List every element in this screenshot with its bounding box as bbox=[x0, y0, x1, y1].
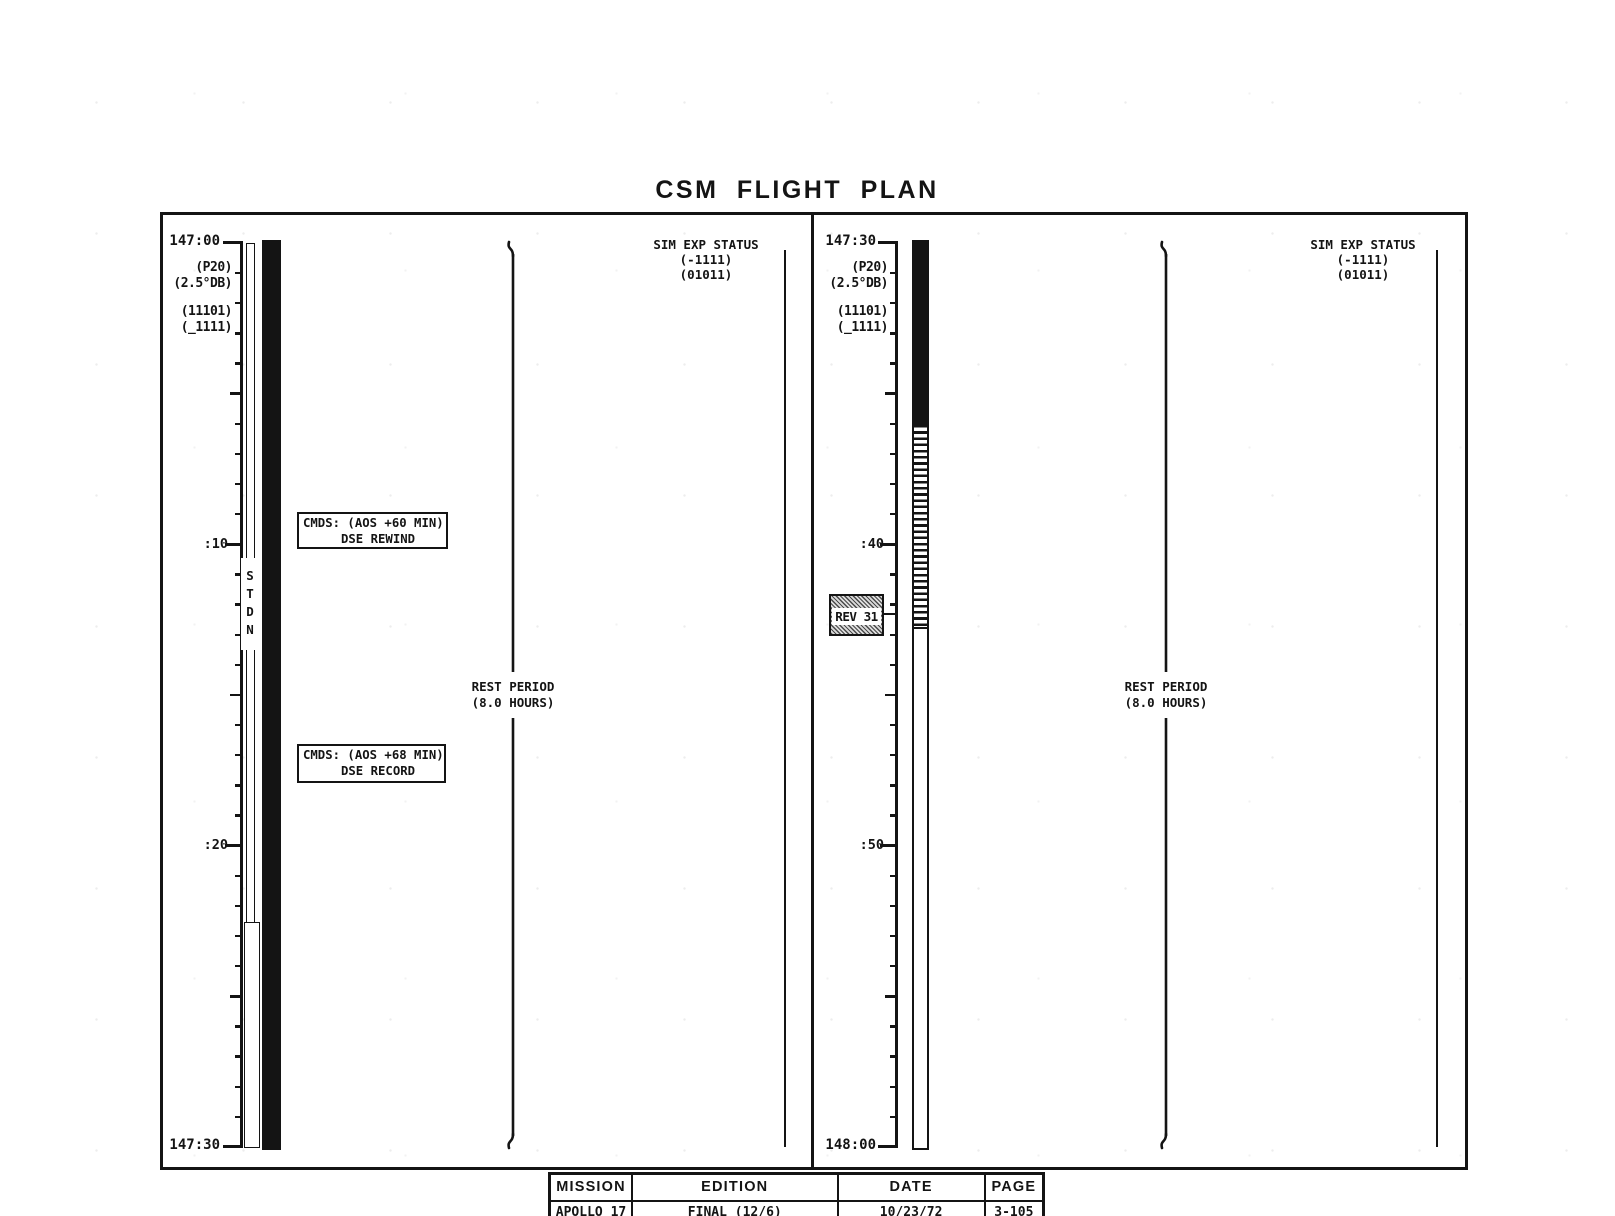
config-label-p20-right: (P20) bbox=[788, 260, 888, 275]
minute-tick bbox=[235, 302, 242, 304]
tick-label-50: :50 bbox=[834, 837, 884, 853]
rest-period-line2-right: (8.0 HOURS) bbox=[1086, 695, 1246, 711]
sim-exp-line2-left: (-1111) bbox=[626, 252, 786, 267]
minute-tick bbox=[890, 965, 897, 967]
bar-segment-hollow bbox=[912, 627, 930, 1150]
cmds-rewind-line2: DSE REWIND bbox=[303, 532, 446, 548]
minute-tick bbox=[885, 694, 897, 696]
rev-31-label: REV 31 bbox=[832, 608, 881, 625]
rest-period-label-right: REST PERIOD (8.0 HOURS) bbox=[1086, 679, 1246, 710]
minute-tick bbox=[230, 392, 242, 394]
minute-tick bbox=[890, 603, 897, 605]
sim-exp-status-left: SIM EXP STATUS (-1111) (01011) bbox=[626, 237, 786, 283]
axis-top-elbow-right bbox=[878, 241, 898, 244]
config-label-bits2-right: (_1111) bbox=[788, 320, 888, 335]
minute-tick bbox=[880, 543, 897, 545]
axis-bottom-elbow-left bbox=[223, 1145, 243, 1148]
minute-tick bbox=[890, 1055, 897, 1057]
tick-label-40: :40 bbox=[834, 536, 884, 552]
minute-tick bbox=[225, 844, 242, 846]
minute-tick bbox=[890, 1116, 897, 1118]
rev-31-leader-line bbox=[883, 613, 896, 615]
sim-exp-line2-right: (-1111) bbox=[1283, 252, 1443, 267]
minute-tick bbox=[235, 332, 242, 334]
minute-tick bbox=[235, 1086, 242, 1088]
minute-tick bbox=[235, 784, 242, 786]
time-label-end-right: 148:00 bbox=[806, 1137, 876, 1154]
hollow-bar-lower-left bbox=[244, 922, 260, 1148]
panel-divider bbox=[811, 212, 814, 1170]
minute-tick bbox=[890, 272, 897, 274]
minute-tick bbox=[890, 875, 897, 877]
bar-segment-solid bbox=[912, 240, 930, 425]
board-border bbox=[160, 212, 1468, 1170]
minute-tick bbox=[235, 754, 242, 756]
sim-exp-line3-right: (01011) bbox=[1283, 267, 1443, 282]
minute-tick bbox=[890, 754, 897, 756]
rest-period-bracket-right bbox=[1158, 240, 1174, 1150]
minute-tick bbox=[225, 543, 242, 545]
rest-period-line1-left: REST PERIOD bbox=[433, 679, 593, 695]
sim-exp-line-left bbox=[784, 250, 787, 1147]
footer-table: MISSION EDITION DATE PAGE APOLLO 17 FINA… bbox=[548, 1172, 1045, 1216]
cmds-box-dse-rewind: CMDS: (AOS +60 MIN) DSE REWIND bbox=[297, 512, 448, 549]
stdn-bar-label: STDN bbox=[241, 558, 260, 650]
cmds-box-dse-record: CMDS: (AOS +68 MIN) DSE RECORD bbox=[297, 744, 446, 783]
minute-tick bbox=[235, 423, 242, 425]
sim-exp-line1-left: SIM EXP STATUS bbox=[626, 237, 786, 252]
rest-period-line1-right: REST PERIOD bbox=[1086, 679, 1246, 695]
minute-tick bbox=[235, 814, 242, 816]
config-label-bits2-left: (_1111) bbox=[132, 320, 232, 335]
minute-tick bbox=[885, 995, 897, 997]
minute-tick bbox=[890, 1086, 897, 1088]
minute-tick bbox=[235, 724, 242, 726]
minute-tick bbox=[235, 453, 242, 455]
minute-tick bbox=[890, 423, 897, 425]
sim-exp-status-right: SIM EXP STATUS (-1111) (01011) bbox=[1283, 237, 1443, 283]
sim-exp-line3-left: (01011) bbox=[626, 267, 786, 282]
time-label-start-left: 147:00 bbox=[150, 233, 220, 250]
time-axis-left bbox=[240, 243, 243, 1147]
minute-tick bbox=[890, 1025, 897, 1027]
config-label-p20-left: (P20) bbox=[132, 260, 232, 275]
rest-period-bracket-left bbox=[505, 240, 521, 1150]
minute-tick bbox=[880, 844, 897, 846]
minute-tick bbox=[235, 272, 242, 274]
minute-tick bbox=[235, 1055, 242, 1057]
footer-value-page: 3-105 bbox=[986, 1202, 1042, 1216]
config-label-deadband-right: (2.5°DB) bbox=[788, 276, 888, 291]
minute-tick bbox=[890, 302, 897, 304]
minute-tick bbox=[890, 935, 897, 937]
time-label-end-left: 147:30 bbox=[150, 1137, 220, 1154]
minute-tick bbox=[230, 694, 242, 696]
minute-tick bbox=[890, 724, 897, 726]
minute-tick bbox=[890, 905, 897, 907]
dse-bar-left bbox=[262, 240, 282, 1150]
minute-tick bbox=[235, 935, 242, 937]
minute-tick bbox=[235, 603, 242, 605]
minute-tick bbox=[890, 814, 897, 816]
minute-tick bbox=[235, 905, 242, 907]
config-label-deadband-left: (2.5°DB) bbox=[132, 276, 232, 291]
minute-tick bbox=[235, 513, 242, 515]
footer-value-mission: APOLLO 17 bbox=[551, 1202, 633, 1216]
tick-label-20: :20 bbox=[178, 837, 228, 853]
time-label-start-right: 147:30 bbox=[806, 233, 876, 250]
minute-tick bbox=[235, 875, 242, 877]
axis-bottom-elbow-right bbox=[878, 1145, 898, 1148]
minute-tick bbox=[885, 392, 897, 394]
footer-header-date: DATE bbox=[839, 1175, 986, 1200]
minute-tick bbox=[890, 362, 897, 364]
config-label-bits1-right: (11101) bbox=[788, 304, 888, 319]
minute-tick bbox=[235, 664, 242, 666]
minute-tick bbox=[890, 634, 897, 636]
rest-period-label-left: REST PERIOD (8.0 HOURS) bbox=[433, 679, 593, 710]
minute-tick bbox=[235, 1025, 242, 1027]
footer-value-row: APOLLO 17 FINAL (12/6) 10/23/72 3-105 bbox=[551, 1202, 1042, 1216]
footer-header-row: MISSION EDITION DATE PAGE bbox=[551, 1175, 1042, 1202]
minute-tick bbox=[235, 573, 242, 575]
footer-header-page: PAGE bbox=[986, 1175, 1042, 1200]
minute-tick bbox=[235, 965, 242, 967]
footer-header-mission: MISSION bbox=[551, 1175, 633, 1200]
footer-value-date: 10/23/72 bbox=[839, 1202, 986, 1216]
minute-tick bbox=[890, 453, 897, 455]
sim-exp-line1-right: SIM EXP STATUS bbox=[1283, 237, 1443, 252]
footer-value-edition: FINAL (12/6) bbox=[633, 1202, 838, 1216]
cmds-record-line2: DSE RECORD bbox=[303, 764, 444, 780]
stdn-coverage-bar bbox=[246, 243, 255, 923]
cmds-rewind-line1: CMDS: (AOS +60 MIN) bbox=[303, 516, 446, 532]
minute-tick bbox=[235, 634, 242, 636]
minute-tick bbox=[890, 332, 897, 334]
minute-tick bbox=[890, 513, 897, 515]
minute-tick bbox=[235, 483, 242, 485]
minute-tick bbox=[230, 995, 242, 997]
minute-tick bbox=[890, 483, 897, 485]
config-label-bits1-left: (11101) bbox=[132, 304, 232, 319]
cmds-record-line1: CMDS: (AOS +68 MIN) bbox=[303, 748, 444, 764]
bar-segment-hatched bbox=[912, 425, 930, 627]
flight-plan-page: CSM FLIGHT PLAN 147:00 :10 :20 147:30 (P… bbox=[0, 0, 1615, 1216]
rev-31-flag: REV 31 bbox=[829, 594, 884, 636]
minute-tick bbox=[890, 664, 897, 666]
minute-tick bbox=[890, 784, 897, 786]
page-title: CSM FLIGHT PLAN bbox=[447, 176, 1147, 205]
tick-label-10: :10 bbox=[178, 536, 228, 552]
sim-exp-line-right bbox=[1436, 250, 1439, 1147]
time-axis-right bbox=[895, 243, 898, 1147]
rest-period-line2-left: (8.0 HOURS) bbox=[433, 695, 593, 711]
minute-tick bbox=[235, 362, 242, 364]
minute-tick bbox=[235, 1116, 242, 1118]
axis-top-elbow-left bbox=[223, 241, 243, 244]
footer-header-edition: EDITION bbox=[633, 1175, 838, 1200]
minute-tick bbox=[890, 573, 897, 575]
